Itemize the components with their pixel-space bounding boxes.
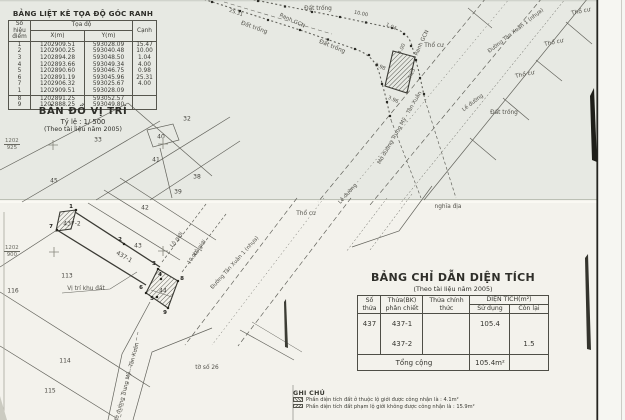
parcel-number-116: 116 [7, 288, 18, 295]
total-con-lai [510, 355, 548, 371]
col-con-lai-header: Còn lại [510, 305, 548, 314]
parcel-number-43: 43 [134, 243, 142, 250]
road-trung-my-bottom [108, 302, 302, 420]
coord-x: 1202893.66 [31, 62, 85, 69]
coordinates-table: Số hiệuđiểm Tọa độ Cạnh X(m) Y(m) 112029… [8, 20, 157, 110]
coord-y: 593028.09 [85, 88, 133, 95]
col-y-header: Y(m) [85, 31, 133, 41]
hatch-swatch-recognized-icon [293, 397, 303, 402]
point-number-5: 5 [150, 296, 154, 302]
notes-legend-block: GHI CHÚ Phần diện tích đất ở thuộc lộ gi… [293, 390, 575, 411]
coord-y: 593025.67 [85, 81, 133, 88]
coord-y: 593049.34 [85, 62, 133, 69]
cell-so-thua [358, 334, 381, 355]
point-id: 1 [9, 88, 31, 95]
cell-con-lai [510, 314, 548, 335]
map-label-to-so-26: tờ số 26 [195, 365, 218, 371]
total-su-dung: 105.4m² [470, 355, 510, 371]
point-id: 3 [9, 55, 31, 62]
parcel-number-114: 114 [59, 358, 70, 365]
grid-crosses [48, 139, 168, 257]
parcel-number-39: 39 [174, 189, 182, 196]
road-tan-xuan-1-top [318, 0, 566, 205]
point-id: 6 [9, 75, 31, 82]
coord-y: 593048.50 [85, 55, 133, 62]
edge-length: 4.00 [133, 81, 157, 88]
parcel-number-44: 44 [159, 288, 167, 295]
coord-x: 1202906.32 [31, 81, 85, 88]
parcel-number-32: 32 [183, 116, 191, 123]
point-number-9: 9 [163, 310, 167, 316]
parcel-number-38: 38 [193, 174, 201, 181]
col-dien-tich-header: DIỆN TÍCH(m²) [470, 296, 548, 305]
map-label-dat-trong: Đất trống [304, 6, 332, 12]
grid-coordinate-label-bottom: 1202 900 [4, 245, 20, 258]
col-x-header: X(m) [31, 31, 85, 41]
col-coords-header: Tọa độ [31, 21, 133, 31]
parcel-number-40: 40 [157, 134, 165, 141]
parcel-number-41: 41 [152, 157, 160, 164]
cell-so-thua: 437 [358, 314, 381, 335]
coordinates-table-title: BẢNG LIỆT KÊ TỌA ĐỘ GÓC RANH [8, 9, 158, 18]
cadastral-document-scan: BẢNG LIỆT KÊ TỌA ĐỘ GÓC RANH Số hiệuđiểm… [0, 0, 625, 420]
edge-length: 4.00 [133, 62, 157, 69]
cemetery-boundary [346, 186, 432, 252]
road-tan-xuan-1-bottom [185, 198, 351, 346]
cell-chinh-thuc [423, 314, 470, 335]
col-point-header: Số hiệuđiểm [9, 21, 31, 42]
cell-bk: 437-1 [381, 314, 423, 335]
coord-y: 593028.09 [85, 41, 133, 48]
map-label-dat-trong: Đất trống [490, 110, 518, 116]
col-edge-header: Cạnh [133, 21, 157, 42]
point-number-4: 4 [158, 272, 162, 278]
point-number-2: 2 [118, 237, 122, 243]
parcel-number-45: 45 [50, 178, 58, 185]
point-id: 7 [9, 81, 31, 88]
point-number-6: 6 [139, 285, 143, 291]
map-label-vi-tri-khu-dat: Vị trí khu đất [67, 286, 105, 292]
edge-length: 0.98 [133, 68, 157, 75]
location-map-heading: BẢN ĐỒ VỊ TRÍ Tỷ lệ : 1/ 500 (Theo tài l… [8, 106, 158, 133]
map-label-tho-cu: Thổ cư [296, 211, 315, 217]
point-id: 8 [9, 95, 31, 102]
coord-x: 1202909.51 [31, 88, 85, 95]
point-number-3: 3 [152, 261, 156, 267]
coord-y: 593046.75 [85, 68, 133, 75]
road-trung-my-steep-top [391, 100, 456, 198]
col-so-thua-header: Số thửa [358, 296, 381, 314]
edge-length: 1.04 [133, 55, 157, 62]
col-bk-header: Thửa(BK) phân chiết [381, 296, 423, 314]
edge-length [133, 88, 157, 95]
parcel-number-33: 33 [94, 137, 102, 144]
hatch-swatch-not-recognized-icon [293, 404, 303, 409]
legend-item-not-recognized: Phần diện tích đất phạm lộ giới không đư… [293, 404, 575, 411]
coord-x: 1202890.60 [31, 68, 85, 75]
parcel-number-437-2: 437-2 [63, 221, 80, 228]
area-table: Số thửa Thửa(BK) phân chiết Thửa chính t… [357, 295, 548, 371]
coord-x: 1202900.25 [31, 48, 85, 55]
col-su-dung-header: Sử dụng [470, 305, 510, 314]
point-id: 2 [9, 48, 31, 55]
corner-coordinates-table-block: BẢNG LIỆT KÊ TỌA ĐỘ GÓC RANH Số hiệuđiểm… [8, 9, 158, 110]
grid-coordinate-label-top: 1202 925 [4, 138, 20, 151]
edge-length: 15.47 [133, 41, 157, 48]
coord-y: 593045.96 [85, 75, 133, 82]
parcel-number-115: 115 [44, 388, 55, 395]
coord-y: 593052.57 [85, 95, 133, 102]
coord-y: 593040.48 [85, 48, 133, 55]
point-number-1: 1 [69, 204, 73, 210]
point-id: 5 [9, 68, 31, 75]
area-table-subtitle: (Theo tài liệu năm 2005) [356, 285, 550, 293]
map-title: BẢN ĐỒ VỊ TRÍ [8, 106, 158, 117]
area-index-table-block: BẢNG CHỈ DẪN DIỆN TÍCH (Theo tài liệu nă… [356, 271, 550, 371]
cell-bk: 437-2 [381, 334, 423, 355]
coord-x: 1202909.51 [31, 41, 85, 48]
point-number-7: 7 [49, 224, 53, 230]
coord-x: 1202891.19 [31, 75, 85, 82]
parcel-number-113: 113 [61, 273, 72, 280]
parcel-number-42: 42 [141, 205, 149, 212]
point-id: 1 [9, 41, 31, 48]
point-id: 4 [9, 62, 31, 69]
edge-length [133, 95, 157, 102]
cell-chinh-thuc [423, 334, 470, 355]
coord-x: 1202891.25 [31, 95, 85, 102]
coord-x: 1202894.28 [31, 55, 85, 62]
lo-gioi-dashed-lines [162, 204, 226, 272]
legend-item-recognized: Phần diện tích đất ở thuộc lộ giới được … [293, 397, 575, 404]
map-label-tho-cu: Thổ cư [424, 43, 443, 49]
tho-cu-parcel-line [424, 0, 592, 200]
edge-length: 25.31 [133, 75, 157, 82]
col-chinh-thuc-header: Thửa chính thức [423, 296, 470, 314]
cell-su-dung: 105.4 [470, 314, 510, 335]
cell-con-lai: 1.5 [510, 334, 548, 355]
cell-su-dung [470, 334, 510, 355]
point-number-8: 8 [180, 276, 184, 282]
map-source: (Theo tài liệu năm 2005) [8, 126, 158, 133]
notes-title: GHI CHÚ [293, 390, 575, 397]
map-scale: Tỷ lệ : 1/ 500 [8, 118, 158, 126]
area-table-title: BẢNG CHỈ DẪN DIỆN TÍCH [356, 271, 550, 284]
total-label: Tổng cộng [358, 355, 470, 371]
edge-length: 10.00 [133, 48, 157, 55]
map-label-nghia-dia: nghĩa địa [435, 204, 462, 210]
